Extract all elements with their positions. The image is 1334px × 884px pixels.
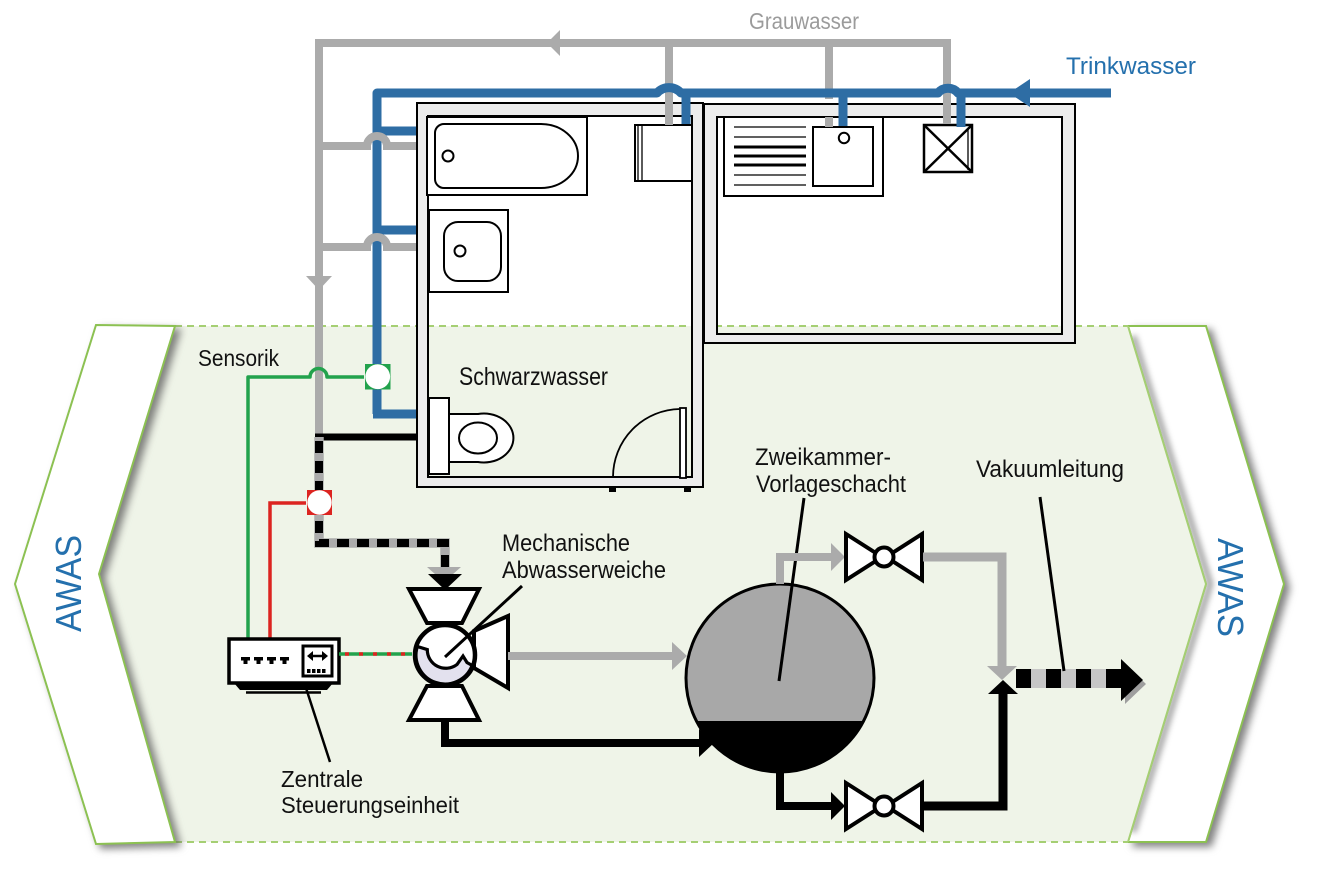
svg-text:Vakuumleitung: Vakuumleitung [976, 456, 1124, 483]
svg-text:Grauwasser: Grauwasser [749, 8, 859, 34]
svg-text:AWAS: AWAS [1210, 538, 1251, 637]
svg-text:Vorlageschacht: Vorlageschacht [756, 471, 906, 498]
svg-text:Sensorik: Sensorik [198, 345, 279, 371]
svg-text:Zweikammer-: Zweikammer- [755, 444, 891, 471]
svg-text:Abwasserweiche: Abwasserweiche [502, 557, 666, 584]
svg-text:Mechanische: Mechanische [502, 530, 630, 557]
svg-text:Zentrale: Zentrale [281, 766, 363, 792]
svg-text:Steuerungseinheit: Steuerungseinheit [281, 792, 460, 818]
svg-text:Trinkwasser: Trinkwasser [1066, 53, 1196, 80]
svg-text:Schwarzwasser: Schwarzwasser [459, 363, 608, 391]
svg-text:AWAS: AWAS [48, 535, 89, 632]
